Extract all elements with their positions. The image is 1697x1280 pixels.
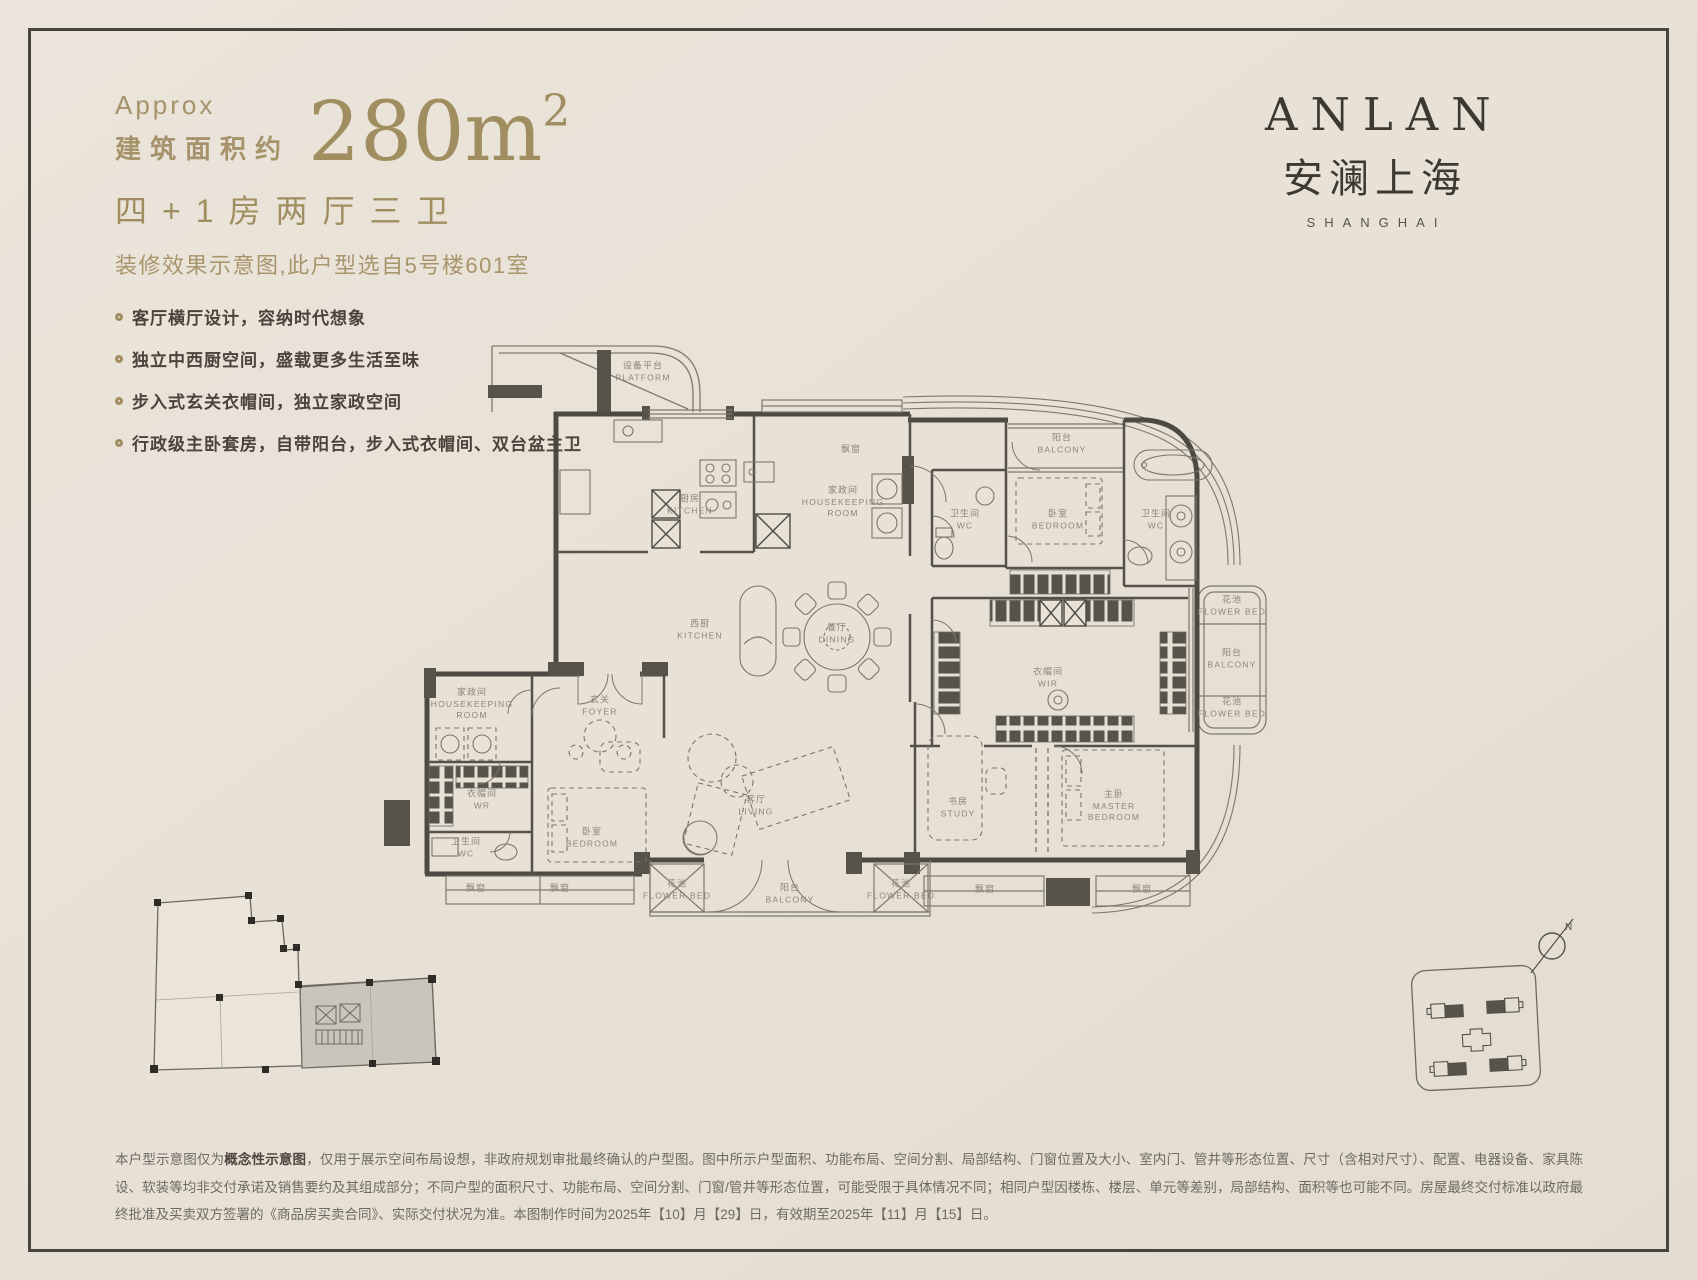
- bullet-icon: [115, 355, 123, 363]
- area-label: 建筑面积约: [115, 129, 290, 166]
- area-number: 280m: [308, 85, 542, 180]
- site-plan: [1411, 965, 1541, 1091]
- brand-city: SHANGHAI: [1252, 215, 1492, 230]
- highlighted-unit: [300, 978, 436, 1068]
- disclaimer-body: ，仅用于展示空间布局设想，非政府规划审批最终确认的户型图。图中所示户型面积、功能…: [115, 1152, 1583, 1222]
- fixtures: [432, 420, 1212, 860]
- brand-name-en: ANLAN: [1252, 88, 1492, 141]
- area-value: 280m2: [308, 94, 570, 166]
- subtitle: 装修效果示意图,此户型选自5号楼601室: [115, 248, 675, 280]
- feature-text: 行政级主卧套房，自带阳台，步入式衣帽间、双台盆主卫: [132, 430, 582, 455]
- north-label: N: [1565, 922, 1572, 933]
- north-compass: N: [1531, 919, 1573, 973]
- header: Approx 建筑面积约 280m2 四+1房两厅三卫 装修效果示意图,此户型选…: [115, 90, 675, 472]
- feature-text: 步入式玄关衣帽间，独立家政空间: [132, 388, 402, 413]
- bullet-icon: [115, 439, 123, 447]
- bullet-icon: [115, 397, 123, 405]
- feature-list: 客厅横厅设计，容纳时代想象 独立中西厨空间，盛载更多生活至味 步入式玄关衣帽间，…: [115, 304, 675, 455]
- approx-label: Approx: [115, 90, 290, 121]
- feature-item: 行政级主卧套房，自带阳台，步入式衣帽间、双台盆主卫: [115, 430, 675, 455]
- brand-logo: ANLAN 安澜上海 SHANGHAI: [1252, 88, 1492, 230]
- key-plan: [150, 892, 440, 1073]
- feature-item: 步入式玄关衣帽间，独立家政空间: [115, 388, 675, 413]
- layout-title: 四+1房两厅三卫: [115, 186, 675, 232]
- bullet-icon: [115, 313, 123, 321]
- feature-item: 独立中西厨空间，盛载更多生活至味: [115, 346, 675, 371]
- east-balcony-pod: [1189, 586, 1266, 734]
- disclaimer: 本户型示意图仅为概念性示意图，仅用于展示空间布局设想，非政府规划审批最终确认的户…: [115, 1146, 1583, 1229]
- disclaimer-bold: 概念性示意图: [224, 1152, 306, 1167]
- brand-name-cn: 安澜上海: [1252, 146, 1492, 204]
- feature-item: 客厅横厅设计，容纳时代想象: [115, 304, 675, 329]
- area-title: Approx 建筑面积约 280m2: [115, 90, 675, 166]
- feature-text: 独立中西厨空间，盛载更多生活至味: [132, 346, 420, 371]
- area-superscript: 2: [542, 86, 570, 137]
- feature-text: 客厅横厅设计，容纳时代想象: [132, 304, 366, 329]
- furniture: [436, 478, 1164, 862]
- disclaimer-lead: 本户型示意图仅为: [115, 1152, 224, 1167]
